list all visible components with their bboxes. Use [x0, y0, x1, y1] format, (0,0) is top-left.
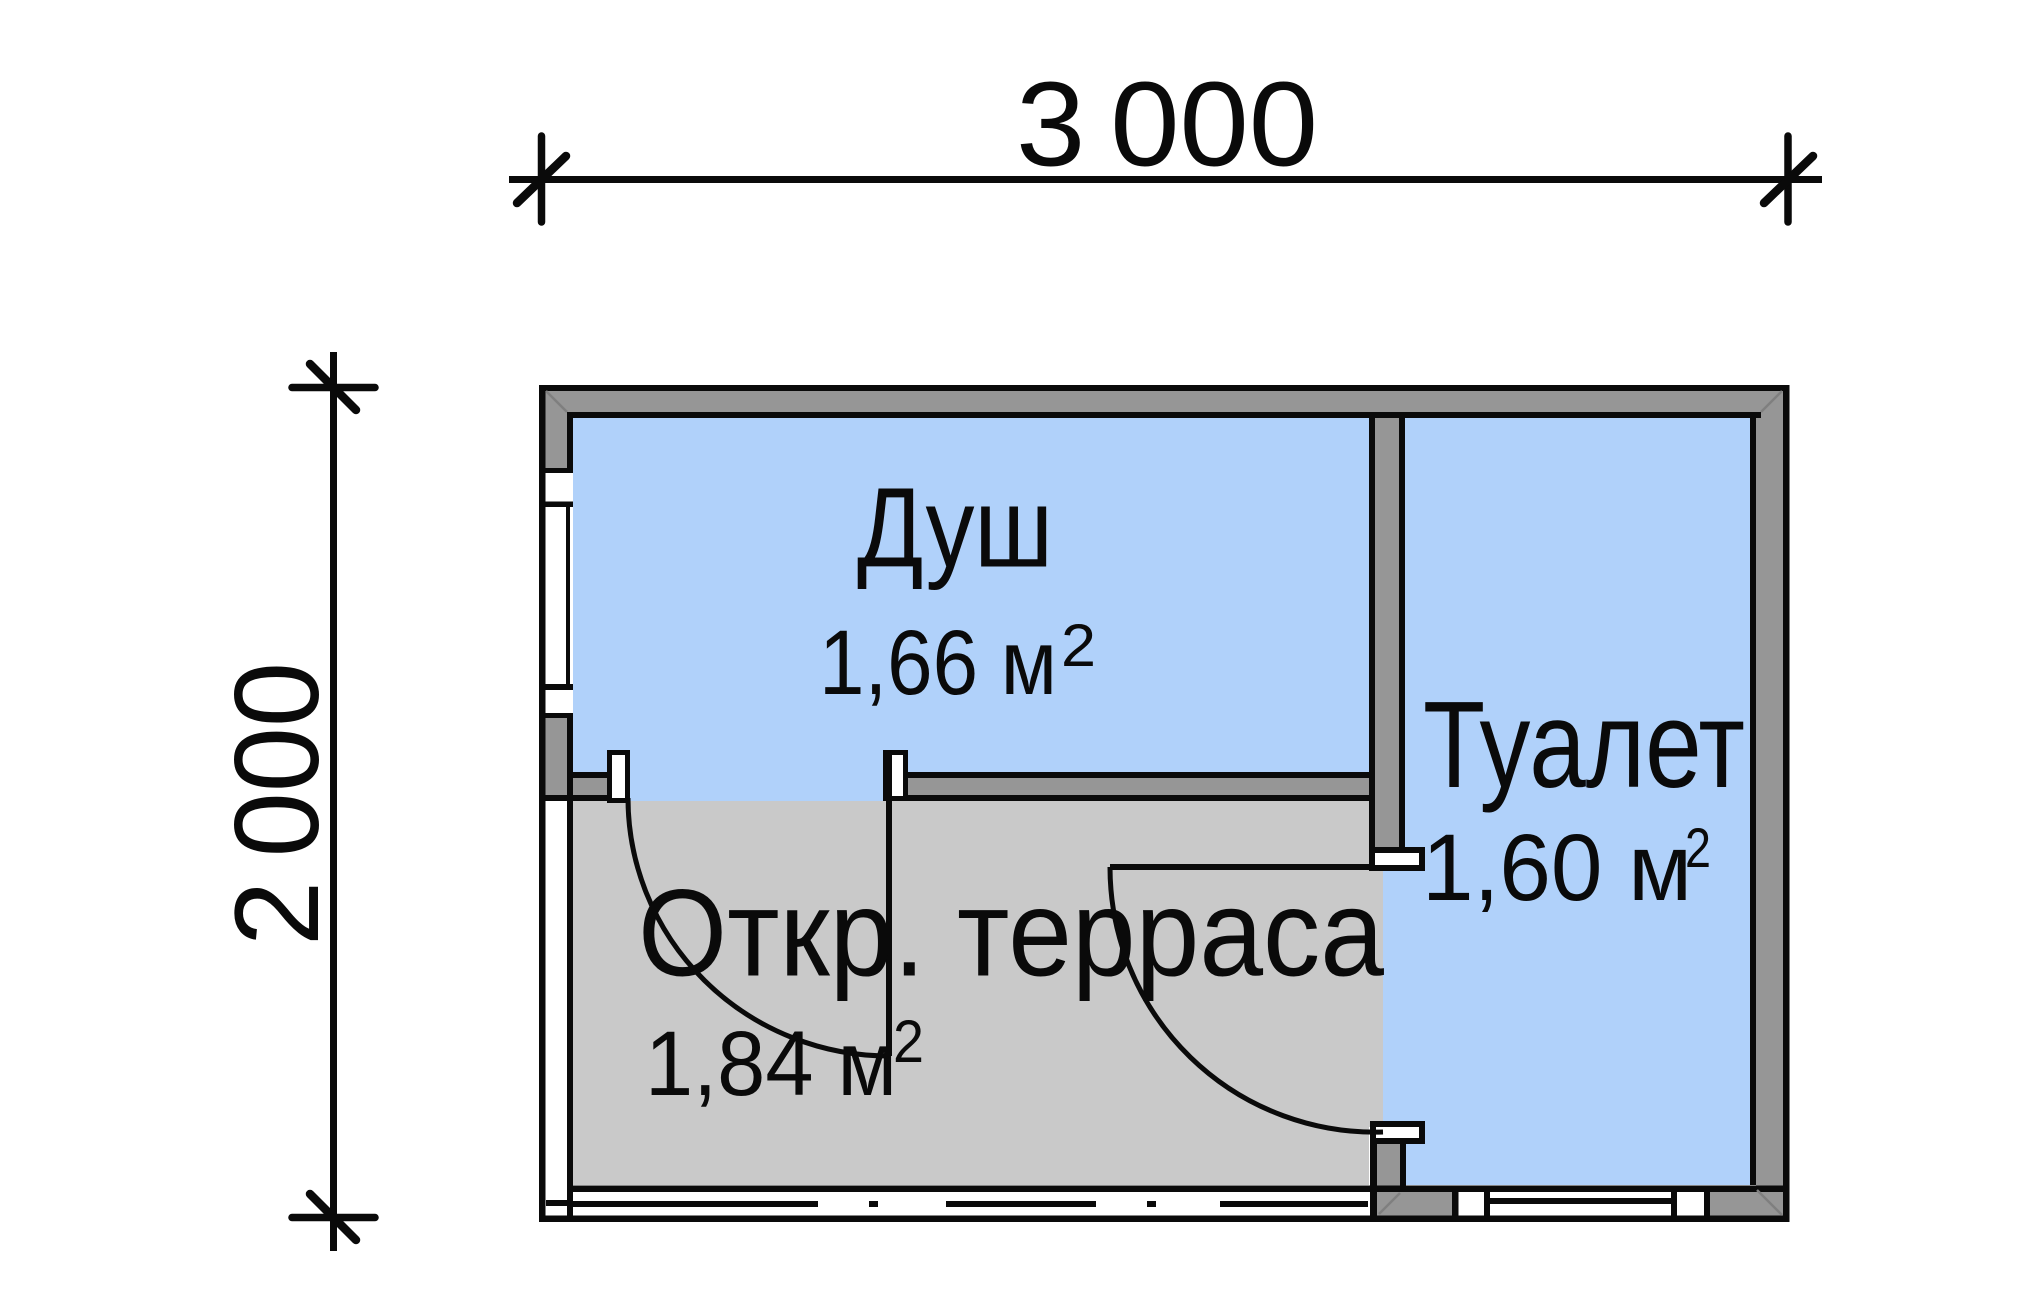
svg-text:Откр. терраса: Откр. терраса: [638, 866, 1385, 1003]
svg-text:1,66 м: 1,66 м: [819, 612, 1057, 714]
svg-text:2 000: 2 000: [210, 662, 344, 946]
svg-text:2: 2: [1061, 612, 1096, 679]
svg-text:3 000: 3 000: [1016, 58, 1318, 192]
svg-text:Туалет: Туалет: [1423, 677, 1745, 814]
svg-text:Душ: Душ: [857, 465, 1053, 591]
svg-text:2: 2: [893, 1008, 924, 1075]
svg-text:2: 2: [1685, 816, 1711, 879]
svg-text:1,60 м: 1,60 м: [1422, 815, 1692, 921]
svg-text:1,84 м: 1,84 м: [645, 1013, 897, 1115]
